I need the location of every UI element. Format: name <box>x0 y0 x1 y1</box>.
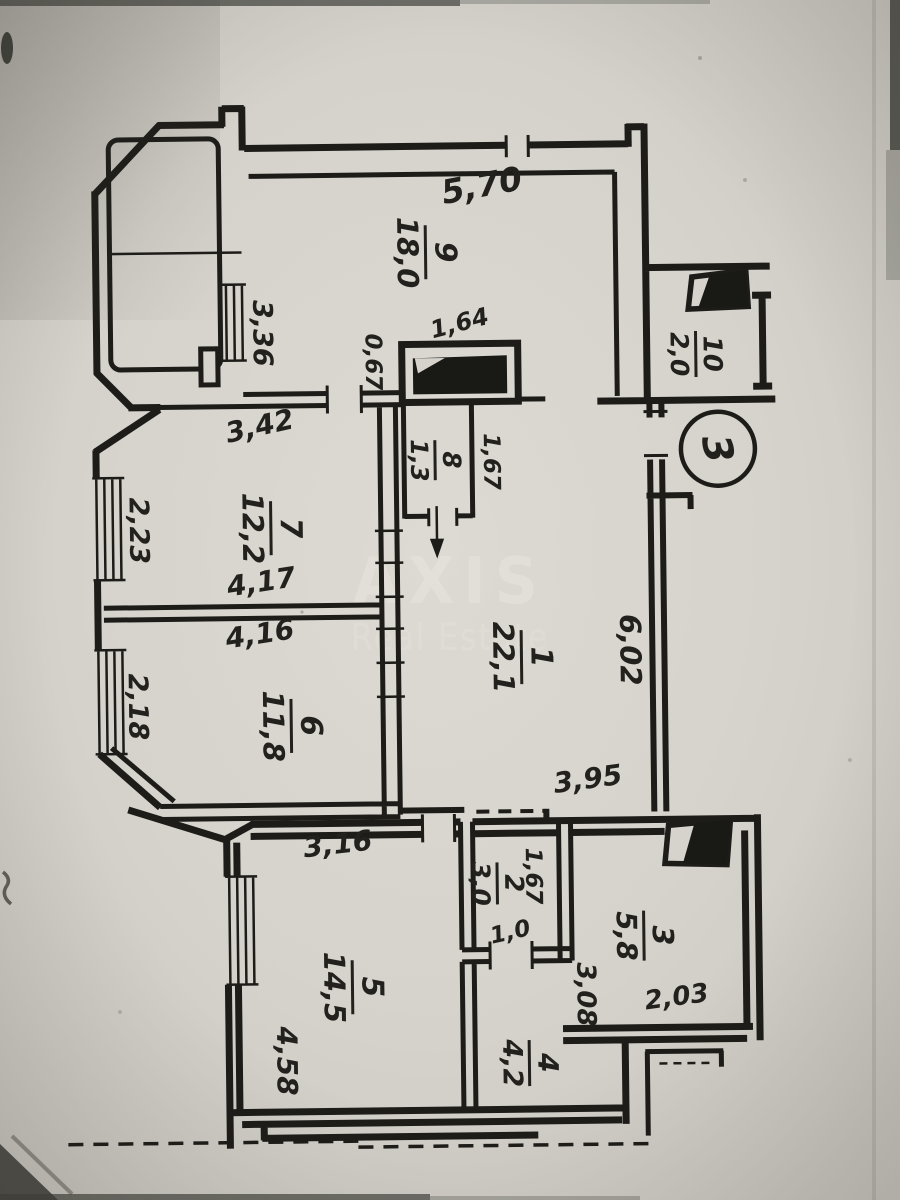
paper-blemishes <box>0 0 900 1200</box>
floor-plan-svg: AXIS Real Estate <box>0 0 900 1200</box>
corner-shading <box>0 0 220 320</box>
scanned-floor-plan-page: AXIS Real Estate <box>0 0 900 1200</box>
